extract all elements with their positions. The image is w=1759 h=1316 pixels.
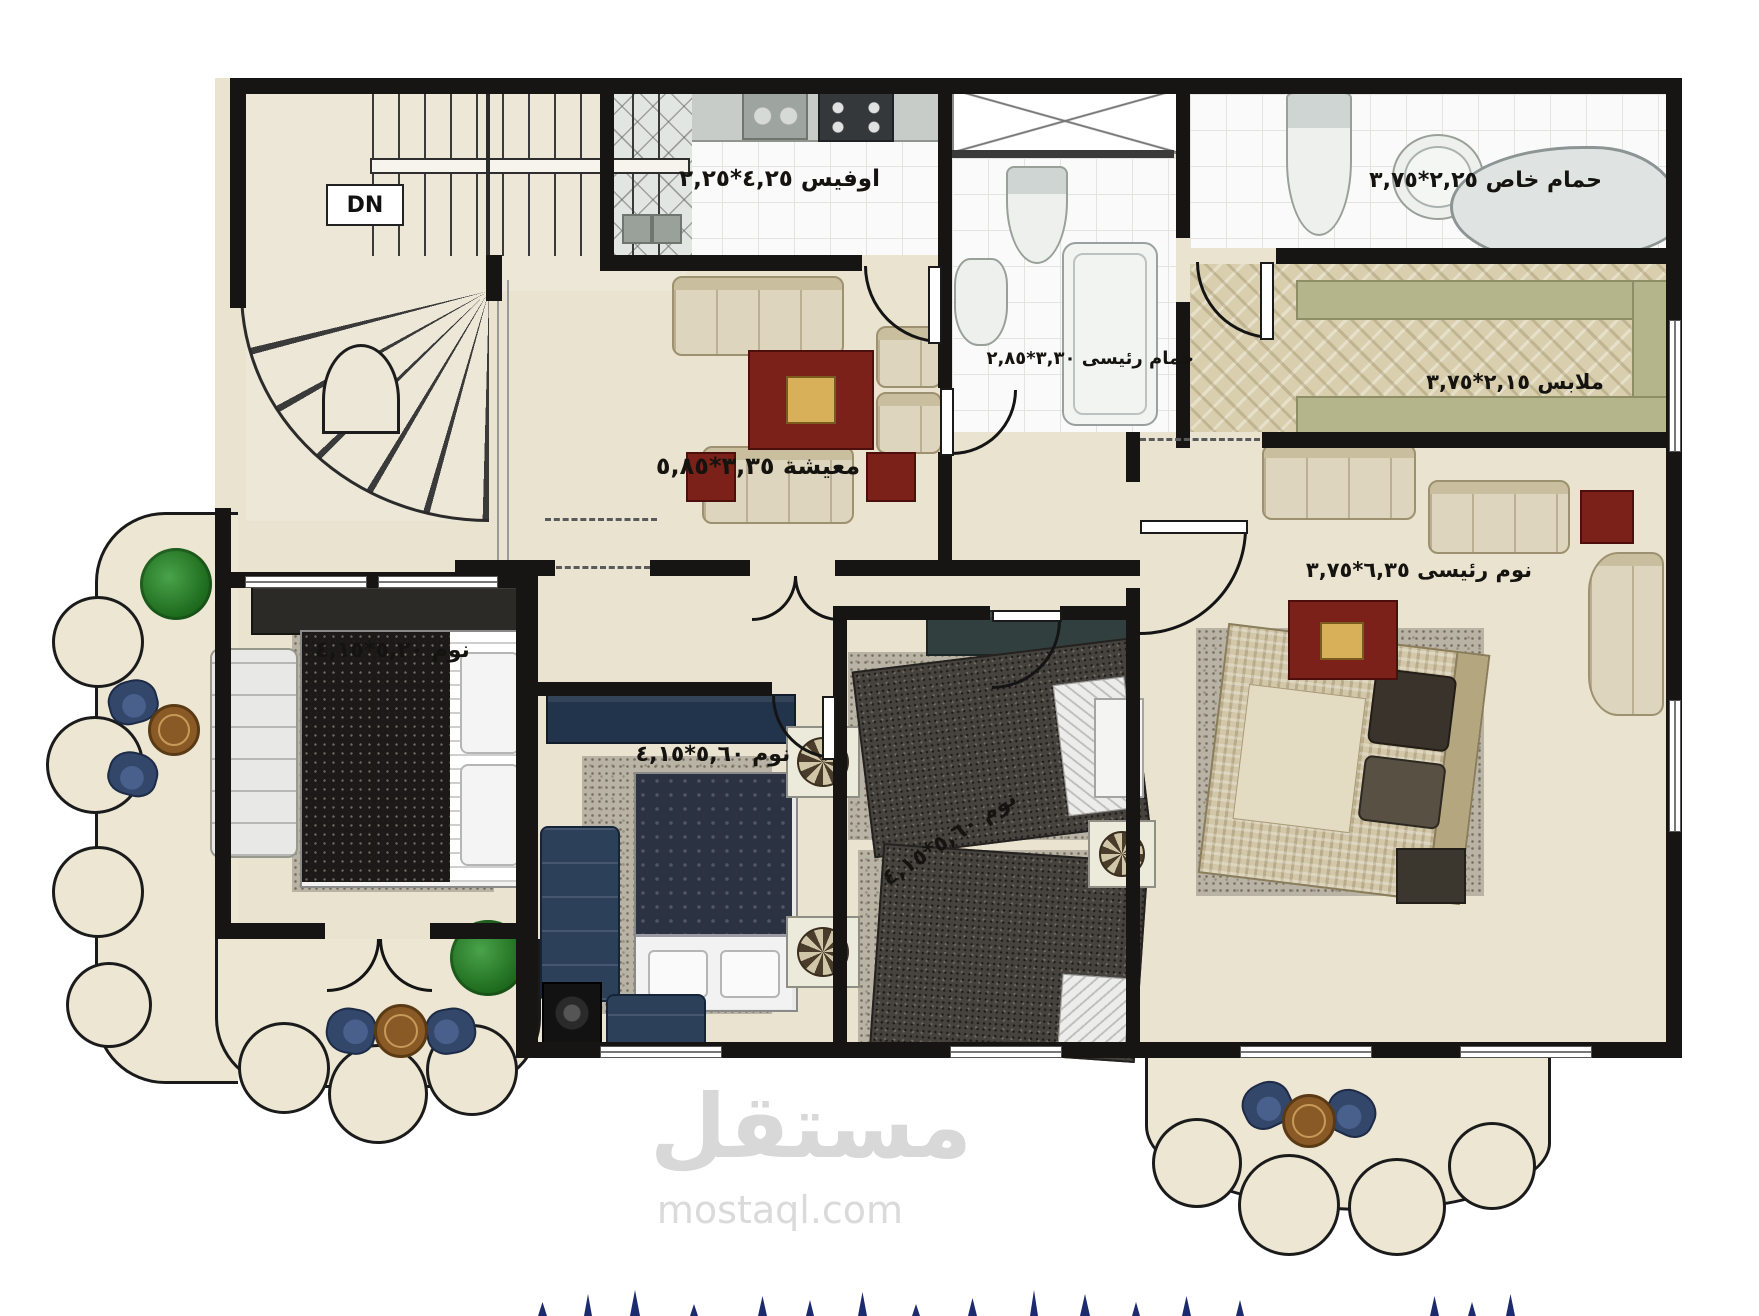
decor-table — [1088, 820, 1156, 888]
wall — [530, 682, 772, 696]
sofa — [672, 276, 844, 356]
toilet — [1286, 92, 1352, 236]
glyph-tip — [1182, 1296, 1191, 1316]
wall — [835, 560, 952, 576]
balcony-scallop — [1348, 1158, 1446, 1256]
wall — [600, 78, 614, 271]
wall — [1126, 1042, 1682, 1058]
kitchen-counter — [692, 90, 938, 142]
room-label-dressing: ملابس ٢,١٥*٣,٧٥ — [1420, 370, 1610, 394]
glyph-tip — [858, 1292, 867, 1316]
glyph-tip — [912, 1304, 920, 1316]
door-leaf — [1260, 262, 1274, 340]
coffee-table — [786, 376, 836, 424]
side-table — [866, 452, 916, 502]
glyph-tip — [806, 1300, 814, 1316]
door-leaf — [992, 610, 1062, 622]
room-label-office: اوفيس ٤,٢٥*٢,٢٥ — [690, 166, 880, 192]
wall — [486, 255, 502, 301]
balcony-scallop — [66, 962, 152, 1048]
wall — [516, 572, 538, 1058]
glyph-tip — [538, 1302, 547, 1316]
balcony-table — [374, 1004, 428, 1058]
wall — [215, 508, 231, 939]
room-label-master-bedroom: نوم رئيسى ٦,٣٥*٣,٧٥ — [1332, 558, 1532, 582]
window — [378, 576, 498, 588]
glyph-tip — [584, 1294, 592, 1316]
glyph-tip — [968, 1298, 977, 1316]
bed-pillow — [1058, 974, 1131, 1053]
window — [1669, 700, 1681, 832]
opening-dashed — [1140, 438, 1260, 441]
glyph-tip — [1506, 1294, 1515, 1316]
side-table — [1580, 490, 1634, 544]
speaker-box — [542, 982, 602, 1044]
wall — [600, 255, 862, 271]
bed-throw — [1232, 684, 1366, 833]
wall — [1126, 588, 1140, 1042]
kitchen-appliance — [622, 214, 652, 244]
wall — [230, 78, 246, 308]
wall — [833, 606, 990, 620]
watermark-logo: مستقل — [650, 1072, 910, 1182]
balcony-table — [1282, 1094, 1336, 1148]
watermark-site: mostaql.com — [650, 1188, 910, 1238]
kitchen-stove — [818, 92, 894, 142]
door-leaf — [1140, 520, 1248, 534]
bed-pillow — [460, 764, 520, 866]
bed-pillow — [460, 652, 520, 754]
glyph-tip — [1132, 1302, 1140, 1316]
wall — [1176, 302, 1190, 448]
window — [1669, 320, 1681, 452]
bathroom-sink — [954, 258, 1008, 346]
opening-dashed — [545, 518, 657, 521]
closet-shelf — [1296, 280, 1672, 320]
balcony-table — [148, 704, 200, 756]
balcony-scallop — [1152, 1118, 1242, 1208]
sofa — [1428, 480, 1570, 554]
wall — [650, 560, 750, 576]
stair-handrail — [370, 158, 690, 174]
window — [1460, 1046, 1592, 1058]
balcony-scallop — [1448, 1122, 1536, 1210]
closet-shelf — [1296, 396, 1672, 436]
kitchen-sink — [742, 92, 808, 140]
wardrobe — [251, 581, 521, 635]
glyph-tip — [758, 1296, 767, 1316]
window — [950, 1046, 1062, 1058]
wall — [938, 560, 1140, 576]
window — [1240, 1046, 1372, 1058]
bed-blanket — [636, 774, 792, 934]
room-label-bedroom-middle: نوم ٥,٦٠*٤,١٥ — [628, 742, 798, 767]
wall — [215, 923, 325, 939]
door-leaf — [928, 266, 942, 344]
window — [245, 576, 367, 588]
bed — [300, 630, 536, 888]
wall — [1666, 78, 1682, 1058]
living-entry-line — [497, 280, 509, 562]
kitchen-appliance — [652, 214, 682, 244]
light-shaft — [952, 88, 1178, 154]
glyph-tip — [630, 1290, 640, 1316]
cropped-caption-glyph-tips — [1420, 1292, 1540, 1316]
balcony-scallop — [238, 1022, 330, 1114]
glyph-tip — [1080, 1294, 1090, 1316]
opening-dashed — [556, 566, 650, 569]
wall — [430, 923, 532, 939]
bed-pillow — [1357, 755, 1446, 831]
bed-pillow — [648, 950, 708, 998]
balcony-scallop — [328, 1044, 428, 1144]
glyph-tip — [1430, 1296, 1439, 1316]
door-leaf — [822, 696, 836, 760]
wall — [1060, 606, 1140, 620]
plant — [140, 548, 212, 620]
armchair — [876, 392, 942, 454]
balcony-scallop — [52, 846, 144, 938]
wall — [1126, 432, 1140, 482]
bed-pillow — [720, 950, 780, 998]
wardrobe — [546, 694, 796, 744]
room-label-main-bathroom: حمام رئيسى ٣,٣٠*٢,٨٥ — [1014, 348, 1194, 369]
room-label-bedroom-left: نوم ٥,٢٠*٤,١٥ — [305, 638, 480, 663]
carpet-medallion — [1320, 622, 1364, 660]
glyph-tip — [690, 1304, 698, 1316]
bathtub — [1062, 242, 1158, 426]
sofa — [1262, 444, 1416, 520]
shaft-partition — [952, 150, 1174, 158]
balcony-scallop — [52, 596, 144, 688]
glyph-tip — [1030, 1290, 1038, 1316]
wall — [938, 452, 952, 562]
cropped-caption-glyph-tips — [520, 1288, 1280, 1316]
wall — [833, 606, 847, 1058]
bed-blanket — [302, 632, 450, 882]
wall — [1262, 432, 1682, 448]
chaise-lounge — [1588, 552, 1664, 716]
dn-label: DN — [347, 193, 384, 218]
glyph-tip — [1468, 1302, 1476, 1316]
wall — [230, 78, 1682, 94]
wall — [1276, 248, 1682, 264]
balcony-scallop — [1238, 1154, 1340, 1256]
door-leaf — [940, 388, 954, 456]
sofa — [540, 826, 620, 1002]
wall — [1176, 78, 1190, 238]
dn-label-box: DN — [326, 184, 404, 226]
bed-bench — [1396, 848, 1466, 904]
window — [600, 1046, 722, 1058]
room-label-private-bathroom: حمام خاص ٢,٢٥*٣,٧٥ — [1372, 168, 1602, 193]
bed — [634, 772, 798, 1012]
decor-table — [786, 916, 860, 988]
floor-plan-canvas: DN — [0, 0, 1759, 1316]
glyph-tip — [1236, 1300, 1244, 1316]
room-label-living: معيشة ٣,٣٥*٥,٨٥ — [648, 452, 868, 480]
